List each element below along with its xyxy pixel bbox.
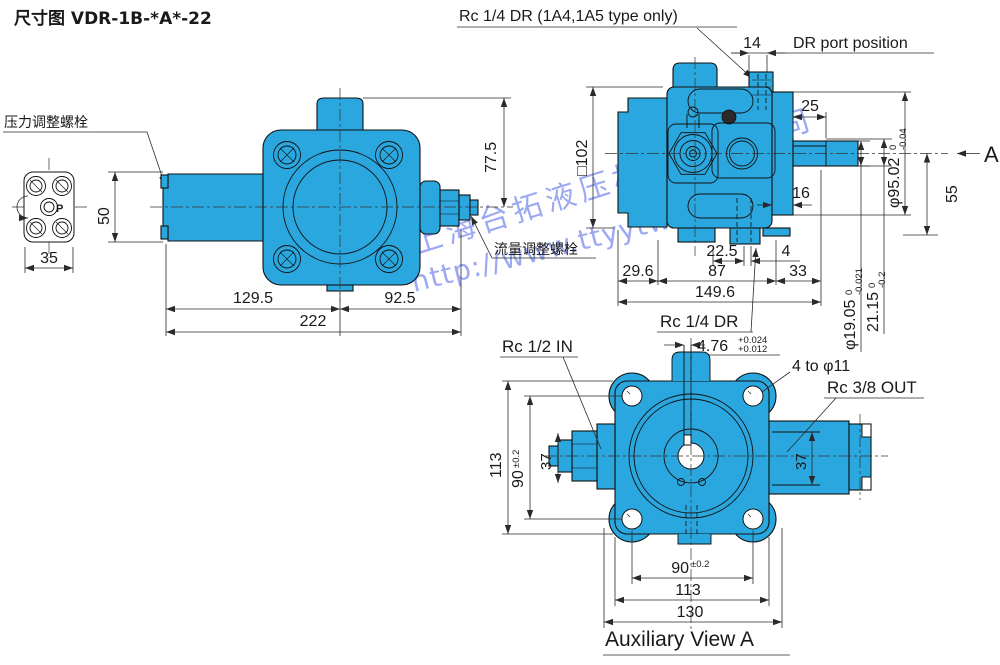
dim-50-text: 50 (96, 207, 113, 225)
dim-90-left-tol: ±0.2 (511, 450, 522, 468)
dim-21-15-tol-bot: -0.2 (877, 272, 888, 288)
view-a-arrow: A (957, 142, 999, 167)
aux-bottom-tab-fill (678, 534, 711, 544)
flow-bolt-label: 流量调整螺栓 (494, 242, 578, 258)
flow-screw-nut (459, 195, 470, 220)
dim-55-text: 55 (944, 185, 961, 203)
dim-37-out-text: 37 (793, 453, 810, 470)
dim-21-15-text: 21.15 (865, 292, 882, 332)
dim-113-left-text: 113 (488, 452, 505, 478)
dim-87-text: 87 (708, 263, 726, 280)
dim-129-5-text: 129.5 (233, 290, 273, 307)
side-bottom-boss (678, 228, 715, 242)
dim-35-text: 35 (40, 250, 58, 267)
rc14-dr-label: Rc 1/4 DR (660, 312, 738, 331)
drawing-canvas: 上海台拓液压机械有限公司 http://www.ttyytw.com 尺寸图 V… (0, 0, 1000, 665)
dim-37-in-text: 37 (538, 453, 555, 470)
side-rear-block (618, 98, 667, 227)
dim-4-76-tol-bot: +0.012 (738, 344, 767, 355)
rc38-out-label: Rc 3/8 OUT (827, 378, 917, 397)
view-a-text: A (984, 142, 999, 167)
pressure-bolt-leader (97, 132, 165, 185)
rc12-in-label: Rc 1/2 IN (502, 337, 573, 356)
aux-view-label: Auxiliary View A (605, 628, 754, 651)
dr-note-label: Rc 1/4 DR (1A4,1A5 type only) (459, 8, 678, 25)
aux-key-slot (684, 435, 691, 445)
dr-port-position-label: DR port position (793, 35, 908, 52)
dim-29-6-text: 29.6 (622, 263, 653, 280)
dim-dia95-tol-bot: -0.04 (898, 128, 909, 150)
dim-4-text: 4 (782, 243, 791, 260)
drain-boss (730, 228, 760, 244)
dim-14-text: 14 (743, 35, 761, 52)
dim-dia19-tol-bot: -0.021 (854, 268, 865, 295)
inlet-port (549, 424, 615, 489)
port-p-label: P (56, 203, 63, 215)
flange-foot (763, 228, 790, 236)
plug-bolt (722, 110, 736, 124)
dim-33-text: 33 (789, 263, 807, 280)
outlet-port (769, 414, 871, 500)
dimension-drawing-page: 上海台拓液压机械有限公司 http://www.ttyytw.com 尺寸图 V… (0, 0, 1000, 665)
rear-cover-tab-top (161, 175, 168, 188)
dim-90-left-text: 90 (510, 470, 527, 488)
dim-16-text: 16 (792, 185, 810, 202)
flow-screw-mount (420, 181, 440, 234)
rear-cover (163, 174, 263, 241)
dim-92-5-text: 92.5 (384, 290, 415, 307)
dim-130-text: 130 (677, 604, 704, 621)
dim-dia95-text: φ95.02 (886, 157, 903, 208)
dim-35: 35 (25, 247, 73, 273)
dim-21-15: 21.15 0 -0.2 (826, 139, 892, 334)
pump-top-view: 50 77.5 129.5 92.5 222 (96, 88, 513, 336)
dim-149-6-text: 149.6 (695, 284, 735, 301)
page-title: 尺寸图 VDR-1B-*A*-22 (14, 8, 212, 29)
four-holes-label: 4 to φ11 (792, 358, 850, 375)
pump-side-view: 14 DR port position □102 25 16 φ95.02 0 … (574, 35, 999, 352)
dim-dia19-text: φ19.05 (842, 299, 859, 350)
dim-sq102-text: □102 (574, 140, 591, 176)
flow-screw-hex (440, 190, 459, 226)
dim-55: 55 (903, 154, 961, 236)
dim-14: 14 DR port position (731, 35, 934, 72)
dim-90-bottom-text: 90 (671, 560, 689, 577)
dim-77-5-text: 77.5 (483, 142, 500, 173)
port-flange-view: P 35 (12, 158, 88, 273)
aux-view-caption: Auxiliary View A (603, 628, 790, 655)
dim-25-text: 25 (801, 98, 819, 115)
front-body (263, 130, 420, 285)
dim-90-bottom-tol: ±0.2 (691, 559, 709, 570)
auxiliary-view-a: 37 90 ±0.2 113 37 90 ±0.2 1 (488, 337, 924, 655)
dim-22-5-text: 22.5 (706, 243, 737, 260)
rear-cover-tab-bottom (161, 226, 168, 239)
dim-222-text: 222 (300, 313, 327, 330)
dim-113-bottom-text: 113 (675, 582, 701, 599)
pressure-bolt-label: 压力调整螺栓 (4, 115, 88, 131)
flow-screw-tip (470, 200, 478, 215)
side-front-body (667, 87, 772, 228)
